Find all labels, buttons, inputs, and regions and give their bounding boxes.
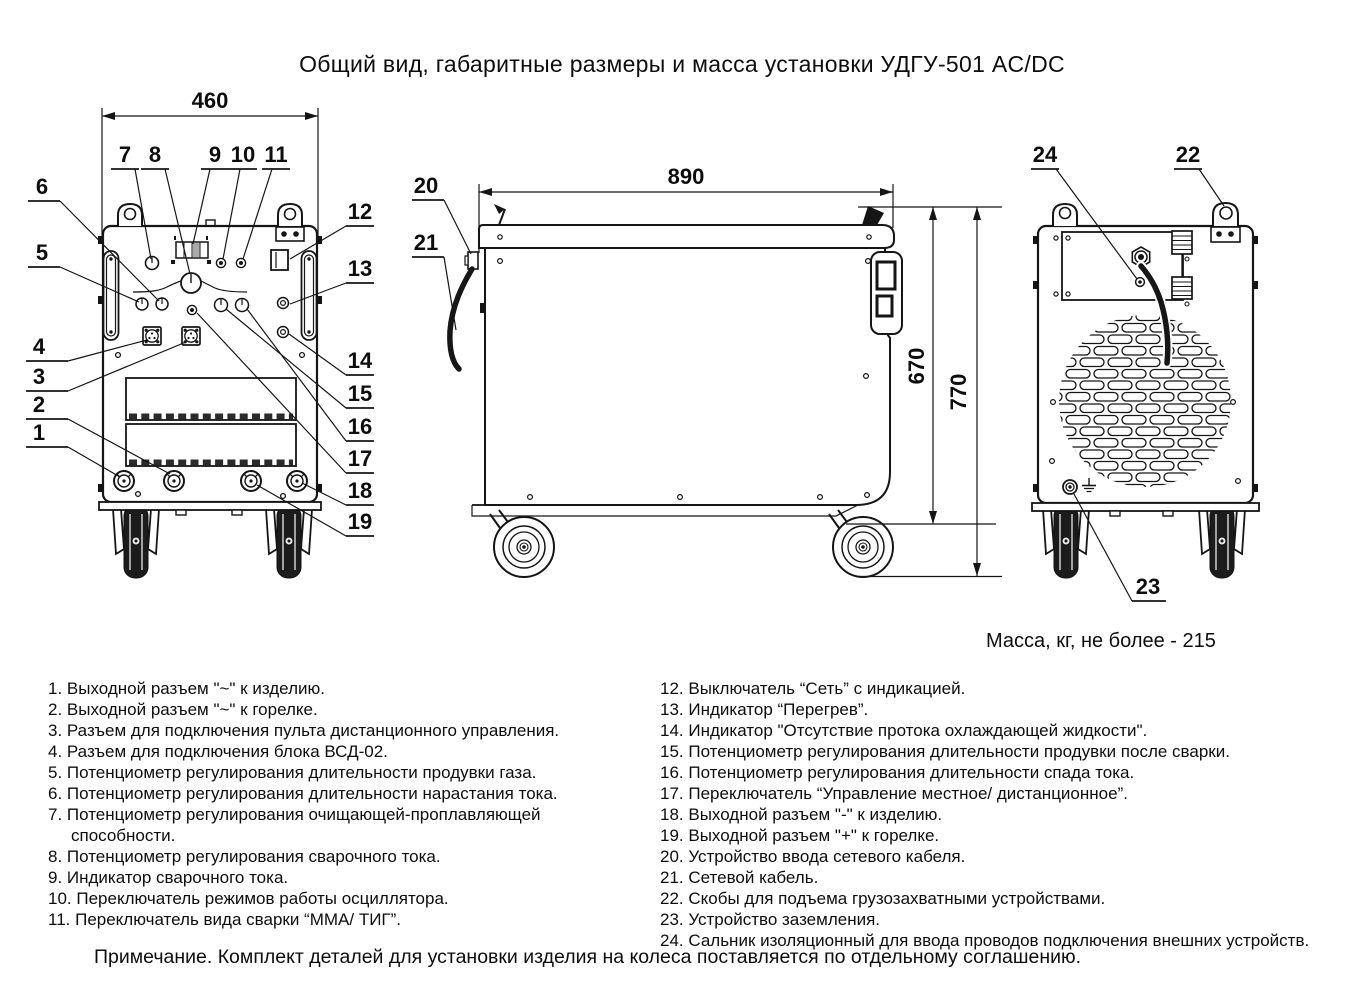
callout-22: 22 [1174, 142, 1224, 206]
svg-text:4: 4 [33, 334, 46, 359]
bottom-rail-side [472, 505, 858, 516]
lifting-lug-front-right [276, 204, 304, 241]
svg-text:22: 22 [1176, 142, 1200, 167]
legend-item-14: 14. Индикатор "Отсутствие протока охлажд… [660, 720, 1364, 741]
legend-item-12: 12. Выключатель “Сеть” с индикацией. [660, 678, 1364, 699]
lug-profile-right [862, 206, 884, 225]
wheel-front-right [266, 505, 312, 578]
lifting-lug-front-left [118, 204, 142, 226]
svg-text:16: 16 [348, 414, 372, 439]
dim-label-670: 670 [904, 348, 929, 385]
lifting-lug-rear-left [1053, 204, 1077, 226]
dim-label-770: 770 [946, 374, 971, 411]
legend-item-11: 11. Переключатель вида сварки “ММА/ ТИГ”… [48, 909, 608, 930]
lug-bracket-side [871, 252, 902, 334]
svg-text:6: 6 [36, 174, 48, 199]
svg-text:1: 1 [33, 420, 45, 445]
technical-drawing: 460 [0, 0, 1364, 620]
wheel-side-front [490, 510, 554, 577]
legend-item-18: 18. Выходной разъем "-" к изделию. [660, 804, 1364, 825]
edge-fastener [480, 303, 485, 313]
legend-item-10: 10. Переключатель режимов работы осцилля… [48, 888, 608, 909]
svg-text:23: 23 [1136, 574, 1160, 599]
legend-item-8: 8. Потенциометр регулирования сварочного… [48, 846, 608, 867]
legend-item-17: 17. Переключатель “Управление местное/ д… [660, 783, 1364, 804]
wheel-rear-left [1043, 505, 1089, 578]
handle-left [104, 251, 119, 340]
legend-item-4: 4. Разъем для подключения блока ВСД-02. [48, 741, 608, 762]
side-callouts: 20 21 [412, 173, 471, 330]
svg-text:2: 2 [33, 392, 45, 417]
side-lid [479, 225, 894, 248]
svg-text:19: 19 [348, 509, 372, 534]
legend-item-2: 2. Выходной разъем "~" к горелке. [48, 699, 608, 720]
legend-left-column: 1. Выходной разъем "~" к изделию. 2. Вых… [48, 678, 608, 930]
legend-item-1: 1. Выходной разъем "~" к изделию. [48, 678, 608, 699]
page: Общий вид, габаритные размеры и масса ус… [0, 0, 1364, 992]
power-switch [271, 250, 288, 270]
legend-item-22: 22. Скобы для подъема грузозахватными ус… [660, 888, 1364, 909]
legend-item-16: 16. Потенциометр регулирования длительно… [660, 762, 1364, 783]
fan-grille [1059, 315, 1231, 487]
legend-item-20: 20. Устройство ввода сетевого кабеля. [660, 846, 1364, 867]
rear-top-panel [1054, 231, 1192, 306]
side-view: 890 [412, 164, 1002, 577]
legend-item-5: 5. Потенциометр регулирования длительнос… [48, 762, 608, 783]
mass-note: Масса, кг, не более - 215 [986, 630, 1216, 653]
callout-21: 21 [412, 230, 456, 330]
dim-label-890: 890 [668, 164, 705, 189]
side-body [485, 248, 890, 505]
wheel-side-rear [829, 510, 893, 577]
legend-item-6: 6. Потенциометр регулирования длительнос… [48, 783, 608, 804]
svg-text:18: 18 [348, 478, 372, 503]
svg-text:8: 8 [149, 142, 161, 167]
svg-text:5: 5 [36, 240, 48, 265]
legend-item-19: 19. Выходной разъем "+" к горелке. [660, 825, 1364, 846]
wheel-front-left [113, 505, 159, 578]
svg-text:24: 24 [1033, 142, 1058, 167]
svg-text:15: 15 [348, 381, 372, 406]
front-view: 460 [26, 88, 374, 578]
svg-text:14: 14 [348, 348, 373, 373]
svg-text:13: 13 [348, 256, 372, 281]
wheel-rear-right [1199, 505, 1245, 578]
legend-item-7: 7. Потенциометр регулирования очищающей-… [48, 804, 608, 846]
svg-text:11: 11 [264, 142, 287, 167]
legend-right-column: 12. Выключатель “Сеть” с индикацией. 13.… [660, 678, 1364, 951]
svg-text:21: 21 [414, 230, 438, 255]
lifting-lug-rear-right [1211, 203, 1240, 242]
rear-view: 24 22 23 [1031, 142, 1259, 601]
legend-item-21: 21. Сетевой кабель. [660, 867, 1364, 888]
legend-item-13: 13. Индикатор “Перегрев”. [660, 699, 1364, 720]
power-cable [450, 269, 472, 369]
svg-text:20: 20 [414, 173, 438, 198]
svg-text:10: 10 [231, 142, 255, 167]
legend-item-15: 15. Потенциометр регулирования длительно… [660, 741, 1364, 762]
svg-text:7: 7 [119, 142, 131, 167]
legend-item-23: 23. Устройство заземления. [660, 909, 1364, 930]
lug-profile-left [494, 204, 505, 225]
legend-item-9: 9. Индикатор сварочного тока. [48, 867, 608, 888]
svg-text:9: 9 [209, 142, 221, 167]
legend-item-3: 3. Разъем для подключения пульта дистанц… [48, 720, 608, 741]
svg-text:3: 3 [33, 364, 45, 389]
dim-label-460: 460 [192, 88, 229, 113]
footer-note: Примечание. Комплект деталей для установ… [94, 946, 1081, 969]
svg-text:12: 12 [348, 199, 372, 224]
svg-text:17: 17 [348, 446, 372, 471]
